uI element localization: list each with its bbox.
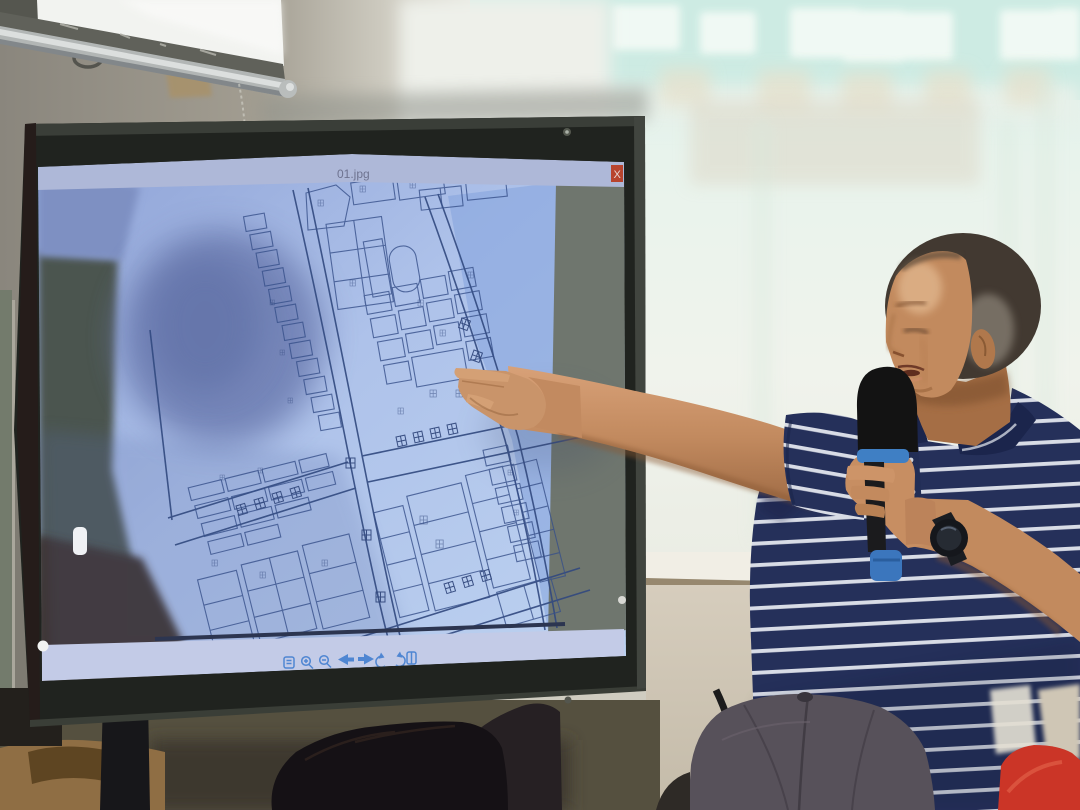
svg-text:X: X [614, 169, 622, 181]
svg-text:01.jpg: 01.jpg [337, 167, 370, 181]
